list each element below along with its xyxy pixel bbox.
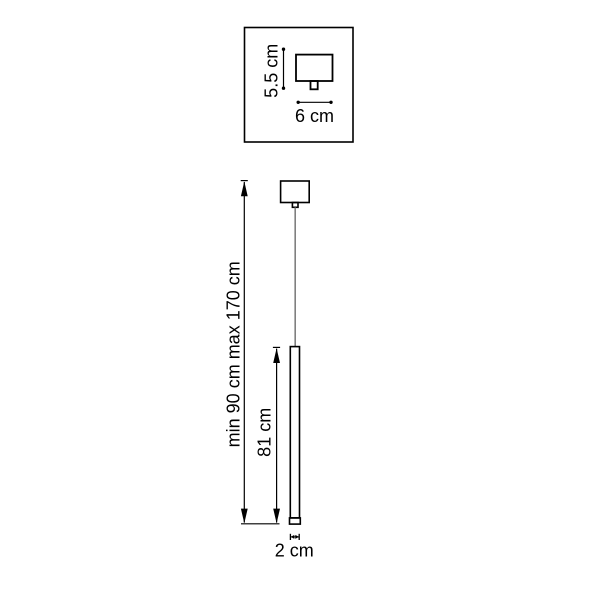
svg-text:81 cm: 81 cm <box>255 408 275 457</box>
svg-text:min 90 cm max 170 cm: min 90 cm max 170 cm <box>224 261 244 447</box>
svg-text:6 cm: 6 cm <box>295 106 334 126</box>
svg-text:5.5 cm: 5.5 cm <box>262 44 282 98</box>
svg-text:2 cm: 2 cm <box>275 541 314 561</box>
